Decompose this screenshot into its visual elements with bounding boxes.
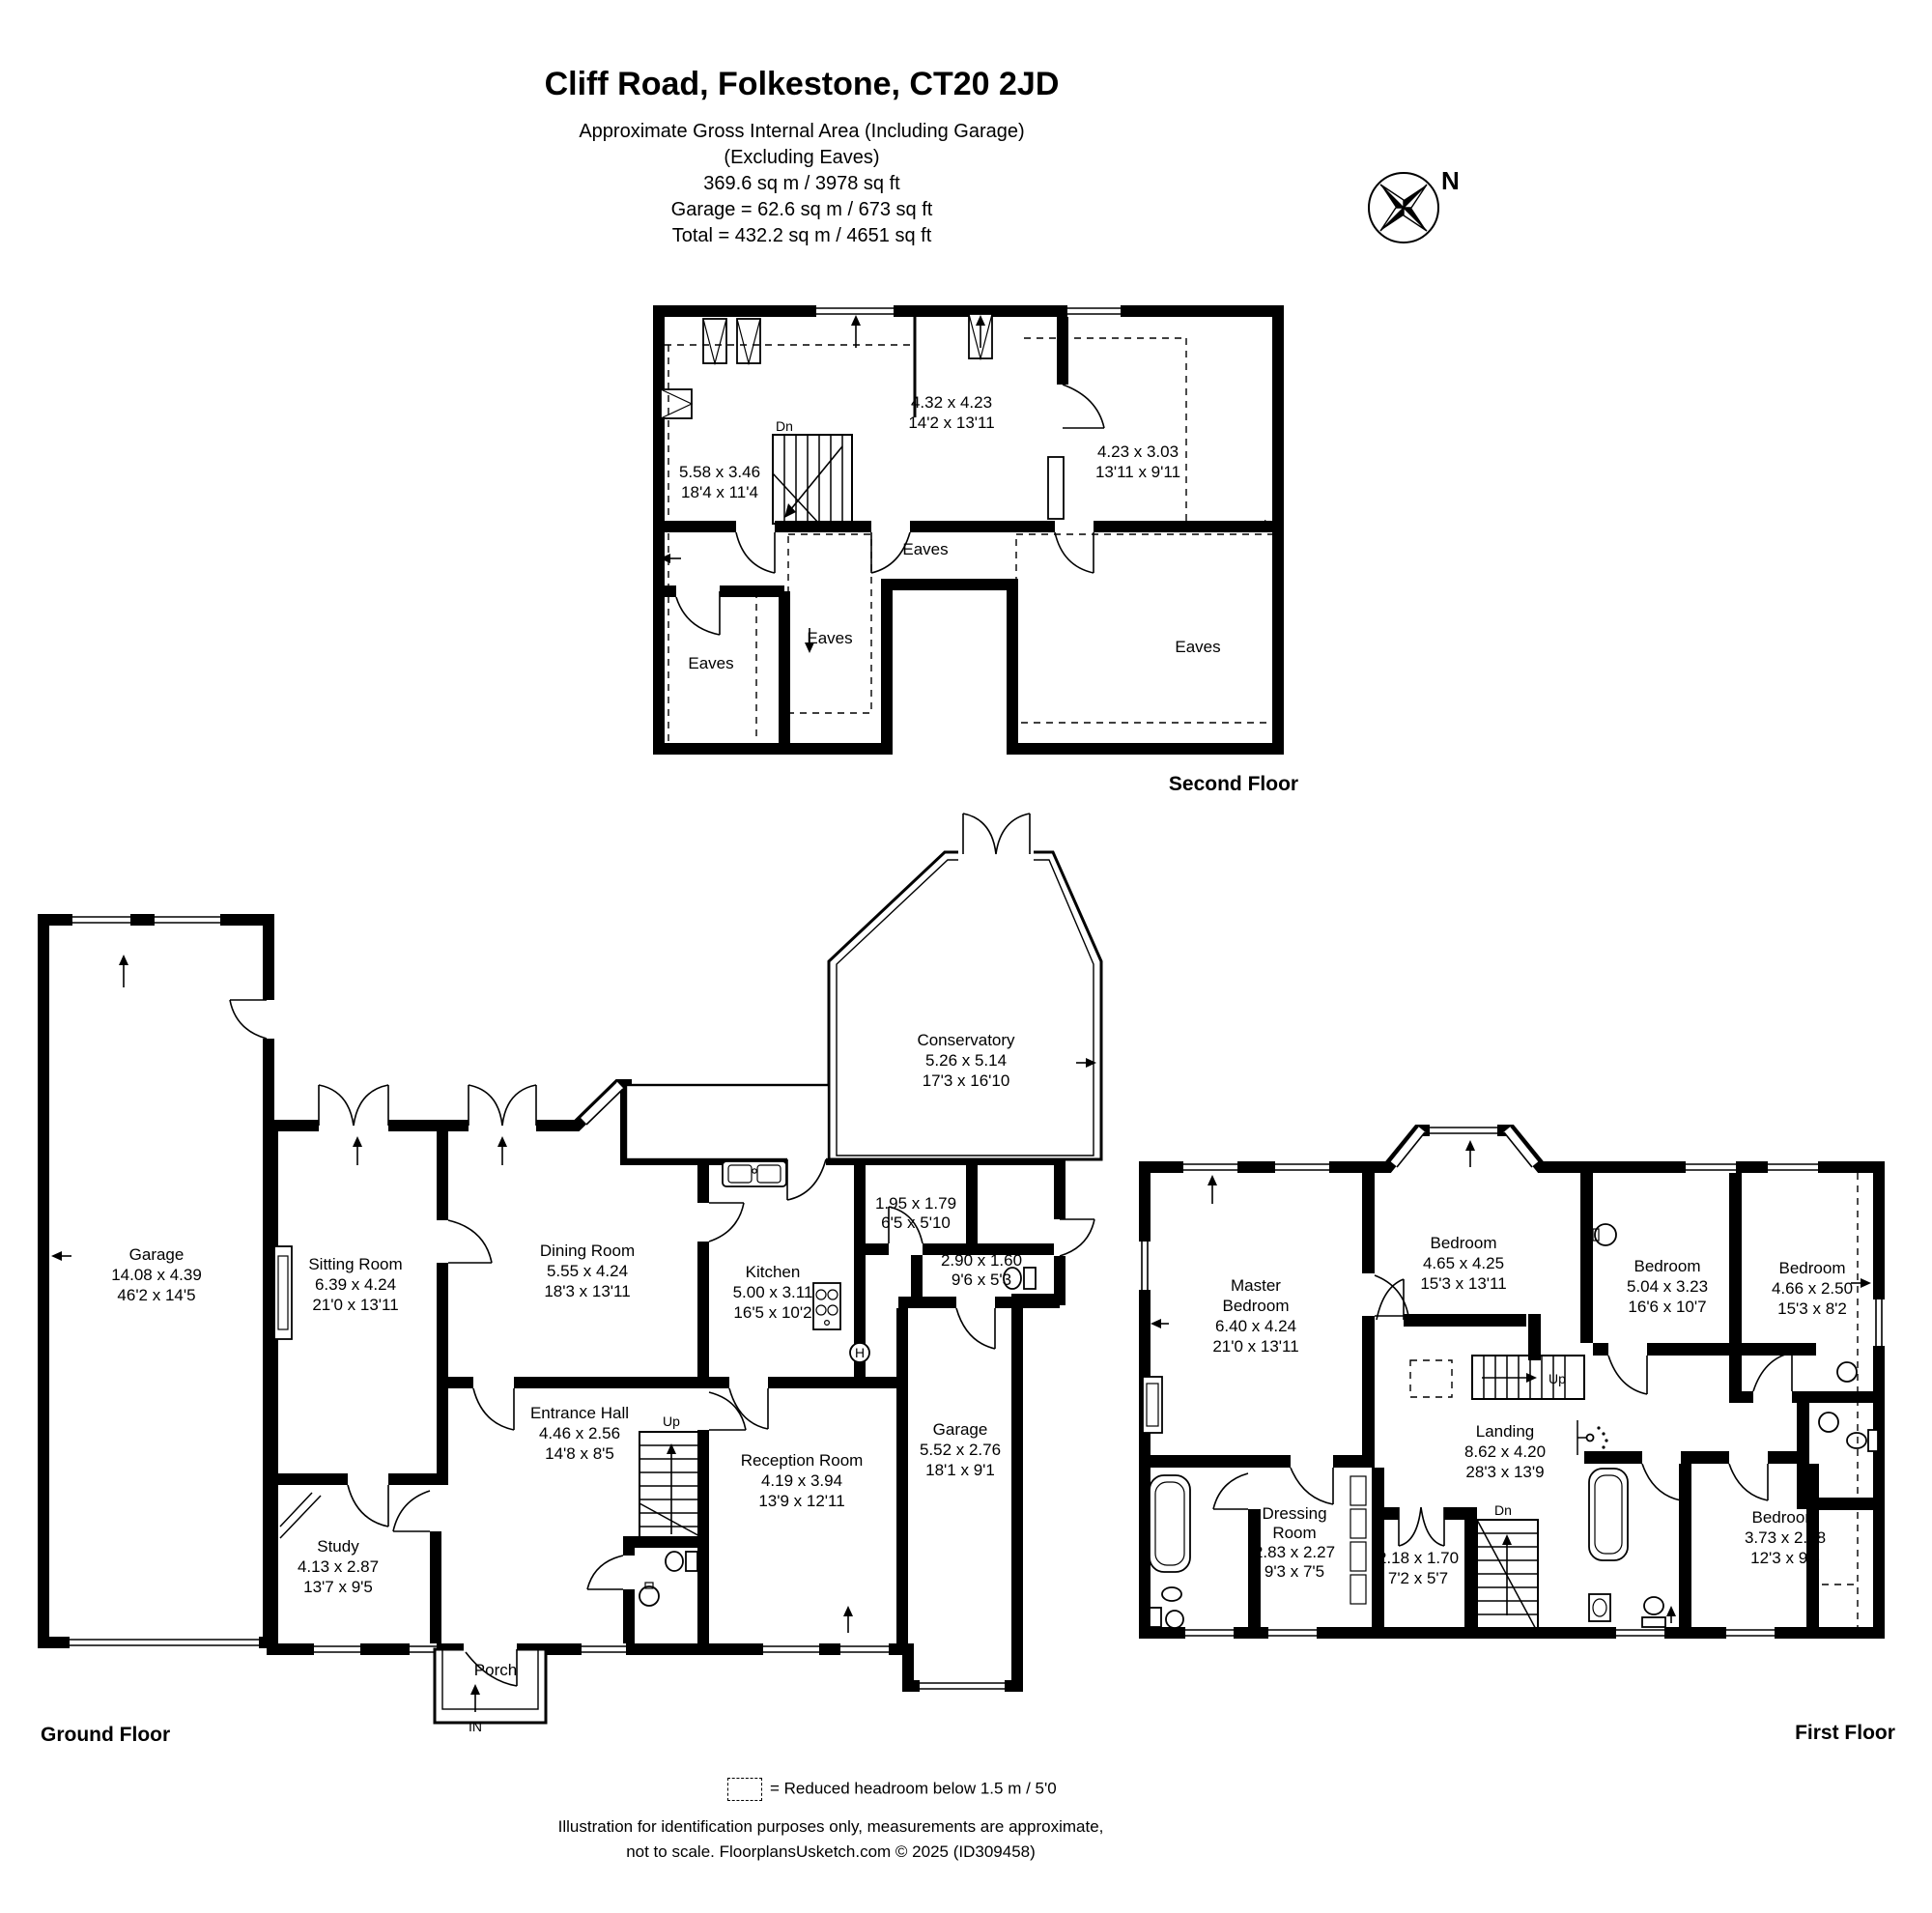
- room-c-dims-ft: 13'11 x 9'11: [1095, 463, 1180, 481]
- bedroom2-dims-m: 4.65 x 4.25: [1423, 1254, 1504, 1272]
- stairs-up-label: Up: [663, 1413, 680, 1429]
- boiler-label: H: [855, 1345, 865, 1360]
- bedroom5-dims-ft: 12'3 x 9'5: [1750, 1549, 1820, 1567]
- eaves-label-right: Eaves: [1175, 638, 1220, 656]
- first-floor-label: First Floor: [1795, 1722, 1895, 1744]
- room-c-dims-m: 4.23 x 3.03: [1097, 443, 1179, 461]
- ground-floor-plan: H Garage: [41, 814, 1101, 1746]
- disclaimer-line-2: not to scale. FloorplansUsketch.com © 20…: [348, 1840, 1314, 1865]
- cupboard-dims-ft: 7'2 x 5'7: [1388, 1569, 1448, 1587]
- entry-in-label: IN: [469, 1719, 482, 1734]
- bed4-basin-icon: [1837, 1362, 1857, 1382]
- room-a-dims-ft: 18'4 x 11'4: [681, 483, 758, 501]
- kitchen-name: Kitchen: [746, 1263, 801, 1281]
- kitchen-dims-ft: 16'5 x 10'2: [733, 1303, 811, 1322]
- landing-dims-ft: 28'3 x 13'9: [1465, 1463, 1544, 1481]
- garage2-name: Garage: [933, 1420, 988, 1439]
- porch-name: Porch: [474, 1661, 517, 1679]
- garage2-dims-ft: 18'1 x 9'1: [925, 1461, 995, 1479]
- room-a-dims-m: 5.58 x 3.46: [679, 463, 760, 481]
- lobby-dims-m: 2.90 x 1.60: [941, 1251, 1022, 1270]
- subtitle-line-2: (Excluding Eaves): [319, 145, 1285, 171]
- stairs-dn-label: Dn: [776, 418, 793, 434]
- subtitle-line-1: Approximate Gross Internal Area (Includi…: [319, 119, 1285, 145]
- entrance-hall-dims-ft: 14'8 x 8'5: [545, 1444, 614, 1463]
- disclaimer-line-1: Illustration for identification purposes…: [348, 1814, 1314, 1840]
- bedroom5-name: Bedroom: [1752, 1508, 1819, 1527]
- room-b-dims-m: 4.32 x 4.23: [911, 393, 992, 412]
- eaves-label-center: Eaves: [807, 629, 852, 647]
- first-stairs-dn-label: Dn: [1494, 1502, 1512, 1518]
- dining-room-name: Dining Room: [540, 1242, 635, 1260]
- master-bedroom-dims-ft: 21'0 x 13'11: [1212, 1337, 1298, 1356]
- subtitle-line-4: Garage = 62.6 sq m / 673 sq ft: [319, 197, 1285, 223]
- bedroom5-dims-m: 3.73 x 2.88: [1745, 1528, 1826, 1547]
- bedroom3-name: Bedroom: [1634, 1257, 1701, 1275]
- master-bedroom-name-2: Bedroom: [1223, 1297, 1290, 1315]
- garage-dims-ft: 46'2 x 14'5: [117, 1286, 195, 1304]
- dressing-room-name-1: Dressing: [1262, 1504, 1326, 1523]
- conservatory-outline: [829, 814, 1101, 1159]
- conservatory-dims-m: 5.26 x 5.14: [925, 1051, 1007, 1070]
- dressing-room-dims-ft: 9'3 x 7'5: [1264, 1562, 1324, 1581]
- entrance-hall-name: Entrance Hall: [530, 1404, 629, 1422]
- reception-room-dims-m: 4.19 x 3.94: [761, 1471, 842, 1490]
- conservatory-dims-ft: 17'3 x 16'10: [923, 1071, 1010, 1090]
- garage2-dims-m: 5.52 x 2.76: [920, 1441, 1001, 1459]
- chimney-breast: [1048, 457, 1064, 519]
- study-name: Study: [317, 1537, 359, 1556]
- ground-floor-label: Ground Floor: [41, 1724, 170, 1746]
- garage-name: Garage: [129, 1245, 185, 1264]
- dining-room-dims-ft: 18'3 x 13'11: [544, 1282, 630, 1300]
- bedroom3-dims-m: 5.04 x 3.23: [1627, 1277, 1708, 1296]
- compass-north-label: N: [1441, 166, 1460, 195]
- entrance-hall-dims-m: 4.46 x 2.56: [539, 1424, 620, 1442]
- utility-dims-ft: 6'5 x 5'10: [881, 1213, 951, 1232]
- dressing-room-name-2: Room: [1272, 1524, 1316, 1542]
- lobby-dims-ft: 9'6 x 5'3: [952, 1271, 1011, 1289]
- sitting-room-dims-m: 6.39 x 4.24: [315, 1275, 396, 1294]
- bedroom4-dims-m: 4.66 x 2.50: [1772, 1279, 1853, 1298]
- study-dims-m: 4.13 x 2.87: [298, 1557, 379, 1576]
- legend-text: = Reduced headroom below 1.5 m / 5'0: [770, 1779, 1057, 1797]
- bedroom2-name: Bedroom: [1431, 1234, 1497, 1252]
- sitting-room-dims-ft: 21'0 x 13'11: [312, 1296, 398, 1314]
- bedroom2-dims-ft: 15'3 x 13'11: [1420, 1274, 1506, 1293]
- title-block: Cliff Road, Folkestone, CT20 2JD Approxi…: [319, 66, 1285, 249]
- master-bedroom-dims-m: 6.40 x 4.24: [1215, 1317, 1296, 1335]
- porch-outline: [435, 1643, 546, 1723]
- first-floor-plan: Master Bedroom 6.40 x 4.24 21'0 x 13'11 …: [1139, 1125, 1895, 1744]
- subtitle-line-5: Total = 432.2 sq m / 4651 sq ft: [319, 223, 1285, 249]
- boiler-icon: H: [850, 1343, 869, 1362]
- sitting-room-fireplace: [274, 1246, 292, 1339]
- hob-icon: [813, 1283, 840, 1329]
- kitchen-dims-m: 5.00 x 3.11: [733, 1283, 813, 1301]
- master-chimney: [1143, 1377, 1162, 1433]
- first-stairs-up-label: Up: [1548, 1371, 1566, 1386]
- wc-toilet-icon: [666, 1552, 697, 1571]
- compass-rose-icon: N: [1369, 166, 1460, 243]
- legend: = Reduced headroom below 1.5 m / 5'0: [727, 1778, 1404, 1801]
- eaves-label-band: Eaves: [902, 540, 948, 558]
- kitchen-sink-icon: [723, 1161, 786, 1186]
- eaves-label-left: Eaves: [688, 654, 733, 672]
- bedroom3-dims-ft: 16'6 x 10'7: [1628, 1298, 1706, 1316]
- master-bedroom-name-1: Master: [1231, 1276, 1281, 1295]
- utility-dims-m: 1.95 x 1.79: [875, 1194, 956, 1213]
- subtitle-line-3: 369.6 sq m / 3978 sq ft: [319, 171, 1285, 197]
- sitting-room-name: Sitting Room: [308, 1255, 402, 1273]
- floorplan-page: Cliff Road, Folkestone, CT20 2JD Approxi…: [0, 0, 1932, 1913]
- page-title: Cliff Road, Folkestone, CT20 2JD: [319, 66, 1285, 103]
- reception-room-dims-ft: 13'9 x 12'11: [758, 1492, 844, 1510]
- study-dims-ft: 13'7 x 9'5: [303, 1578, 373, 1596]
- reduced-headroom-swatch: [727, 1778, 762, 1801]
- room-b-dims-ft: 14'2 x 13'11: [908, 414, 994, 432]
- bedroom4-dims-ft: 15'3 x 8'2: [1777, 1299, 1847, 1318]
- bedroom4-name: Bedroom: [1779, 1259, 1846, 1277]
- second-floor-label: Second Floor: [1169, 773, 1298, 795]
- second-floor-plan: Dn 5.58 x 3.46 18'4 x 11'4 4.32 x 4.23 1…: [659, 305, 1298, 795]
- landing-dims-m: 8.62 x 4.20: [1464, 1442, 1546, 1461]
- conservatory-name: Conservatory: [917, 1031, 1015, 1049]
- disclaimer: Illustration for identification purposes…: [348, 1814, 1314, 1865]
- dressing-room-dims-m: 2.83 x 2.27: [1254, 1543, 1335, 1561]
- reception-room-name: Reception Room: [741, 1451, 864, 1470]
- floorplan-drawing: N: [0, 0, 1932, 1913]
- landing-name: Landing: [1476, 1422, 1535, 1441]
- garage-dims-m: 14.08 x 4.39: [111, 1266, 202, 1284]
- cupboard-dims-m: 2.18 x 1.70: [1378, 1549, 1459, 1567]
- dining-room-dims-m: 5.55 x 4.24: [547, 1262, 628, 1280]
